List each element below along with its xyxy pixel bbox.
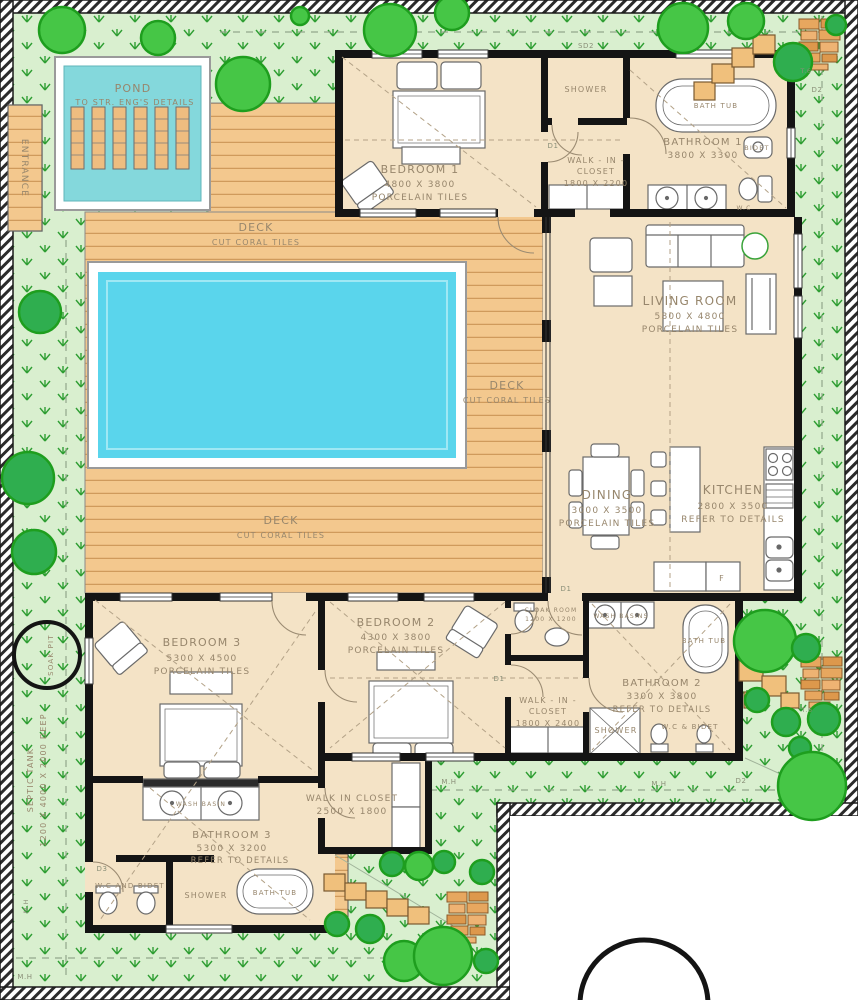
kitchen-dims: 2800 X 3500 — [698, 502, 769, 512]
washbasin3-label: WASH BASIN — [176, 801, 226, 808]
bed-bedroom3 — [160, 672, 242, 778]
plant-living — [742, 233, 768, 259]
tag-t6-right: T.6 — [800, 706, 812, 714]
kitchen-back-counter — [654, 562, 706, 591]
bathroom3-dims: 5300 X 3200 — [197, 844, 268, 854]
tag-t6-topright: T.6 — [799, 67, 811, 75]
manhole-3: M.H — [651, 780, 666, 788]
wcbidet2-label: W.C & BIDET — [661, 723, 718, 731]
bathroom1-dims: 3800 X 3300 — [668, 151, 739, 161]
tv-cabinet-living — [746, 274, 776, 334]
kitchen-note: REFER TO DETAILS — [681, 515, 785, 525]
wic2-line2: CLOSET — [529, 707, 567, 716]
bathtub3-label: BATH TUB — [253, 889, 298, 897]
septic-line1: SEPTIC TANK — [26, 748, 35, 813]
pond — [55, 57, 210, 210]
floor-plan: POND TO STR. ENG'S DETAILS DECK CUT CORA… — [0, 0, 858, 1000]
bedroom2-dims: 4300 X 3800 — [361, 633, 432, 643]
wic2-line1: WALK - IN - — [519, 696, 577, 705]
deck-label-3: DECK — [263, 514, 298, 527]
wc1-label: W.C — [737, 205, 752, 212]
deck-label-1: DECK — [238, 221, 273, 234]
bathroom2-dims: 3300 X 3800 — [627, 692, 698, 702]
shower1-label: SHOWER — [564, 85, 607, 94]
fridge-label: F — [719, 574, 725, 583]
shower2-label: SHOWER — [594, 726, 637, 735]
tag-d2-topright: D2 — [811, 86, 822, 94]
septic-line2: 1200 X 4000 X 2000 DEEP — [39, 713, 48, 846]
living-dims: 5800 X 4800 — [655, 312, 726, 322]
armchair-living — [590, 238, 632, 306]
bathroom3-label: BATHROOM 3 — [192, 830, 271, 841]
bedroom1-finish: PORCELAIN TILES — [372, 193, 468, 203]
vanity-bathroom1 — [648, 185, 726, 210]
bedroom1-label: BEDROOM 1 — [381, 163, 460, 176]
wic2-dims: 1800 X 2400 — [516, 719, 581, 728]
bedroom2-label: BEDROOM 2 — [357, 616, 436, 629]
bedroom3-label: BEDROOM 3 — [163, 636, 242, 649]
kitchen-label: KITCHEN — [703, 483, 763, 497]
site-cutout — [510, 816, 858, 1000]
bathtub1-label: BATH TUB — [694, 102, 739, 110]
cloak-dims: 1200 X 1200 — [525, 616, 577, 623]
bedroom2-finish: PORCELAIN TILES — [348, 646, 444, 656]
bedroom1-dims: 4800 X 3800 — [385, 180, 456, 190]
manhole-1: M.H — [17, 973, 32, 981]
living-finish: PORCELAIN TILES — [642, 325, 738, 335]
mirror-bathroom3 — [143, 779, 259, 787]
closet1-shelf — [549, 185, 626, 209]
closet3-shelf — [392, 763, 420, 851]
closet2-shelf — [508, 727, 587, 753]
wcbidet3-label: W.C AND BIDET — [95, 882, 165, 890]
bathroom1-label: BATHROOM 1 — [663, 137, 742, 148]
washbasins2-label: WASH BASINS — [593, 613, 648, 620]
deck-finish-2: CUT CORAL TILES — [463, 396, 551, 405]
bathtub2-label: BATH TUB — [682, 637, 727, 645]
tag-d3-bathroom3: D3 — [96, 865, 107, 873]
tag-d1-bedroom2: D1 — [493, 675, 504, 683]
dining-dims: 3000 X 3500 — [572, 506, 643, 516]
sofa-living — [646, 225, 744, 267]
bathroom3-note: REFER TO DETAILS — [191, 856, 290, 866]
manhole-2: M.H — [441, 778, 456, 786]
bedroom3-dims: 5300 X 4500 — [167, 654, 238, 664]
cloak-label: CLOAK ROOM — [525, 607, 578, 614]
pond-note: TO STR. ENG'S DETAILS — [74, 98, 194, 107]
bidet1-label: BIDET — [744, 144, 769, 152]
wic1-dims: 1800 X 2200 — [564, 179, 629, 188]
shower3-label: SHOWER — [184, 891, 227, 900]
deck-label-2: DECK — [489, 379, 524, 392]
manhole-4: M.H — [22, 899, 30, 913]
dining-finish: PORCELAIN TILES — [559, 519, 655, 529]
tag-d1-bedroom1: D1 — [547, 142, 558, 150]
bathroom2-note: REFER TO DETAILS — [613, 705, 712, 715]
wic3-label: WALK IN CLOSET — [306, 794, 398, 804]
entrance-label: ENTRANCE — [19, 139, 29, 197]
bathroom2-label: BATHROOM 2 — [622, 678, 701, 689]
dining-label: DINING — [582, 488, 633, 502]
deck-finish-3: CUT CORAL TILES — [237, 531, 325, 540]
wic3-dims: 2500 X 1800 — [317, 807, 388, 817]
bedroom3-finish: PORCELAIN TILES — [154, 667, 250, 677]
tag-d1-hall: D1 — [560, 585, 571, 593]
wic1-line1: WALK - IN - — [567, 156, 625, 165]
tag-d2-right: D2 — [735, 777, 746, 785]
swimming-pool — [88, 262, 466, 468]
wic1-line2: CLOSET — [577, 167, 615, 176]
living-label: LIVING ROOM — [643, 294, 738, 308]
deck-finish-1: CUT CORAL TILES — [212, 238, 300, 247]
pond-label: POND — [115, 82, 152, 95]
soak-pit-label: SOAK PIT — [47, 634, 55, 676]
tag-sd2: SD2 — [578, 42, 594, 50]
